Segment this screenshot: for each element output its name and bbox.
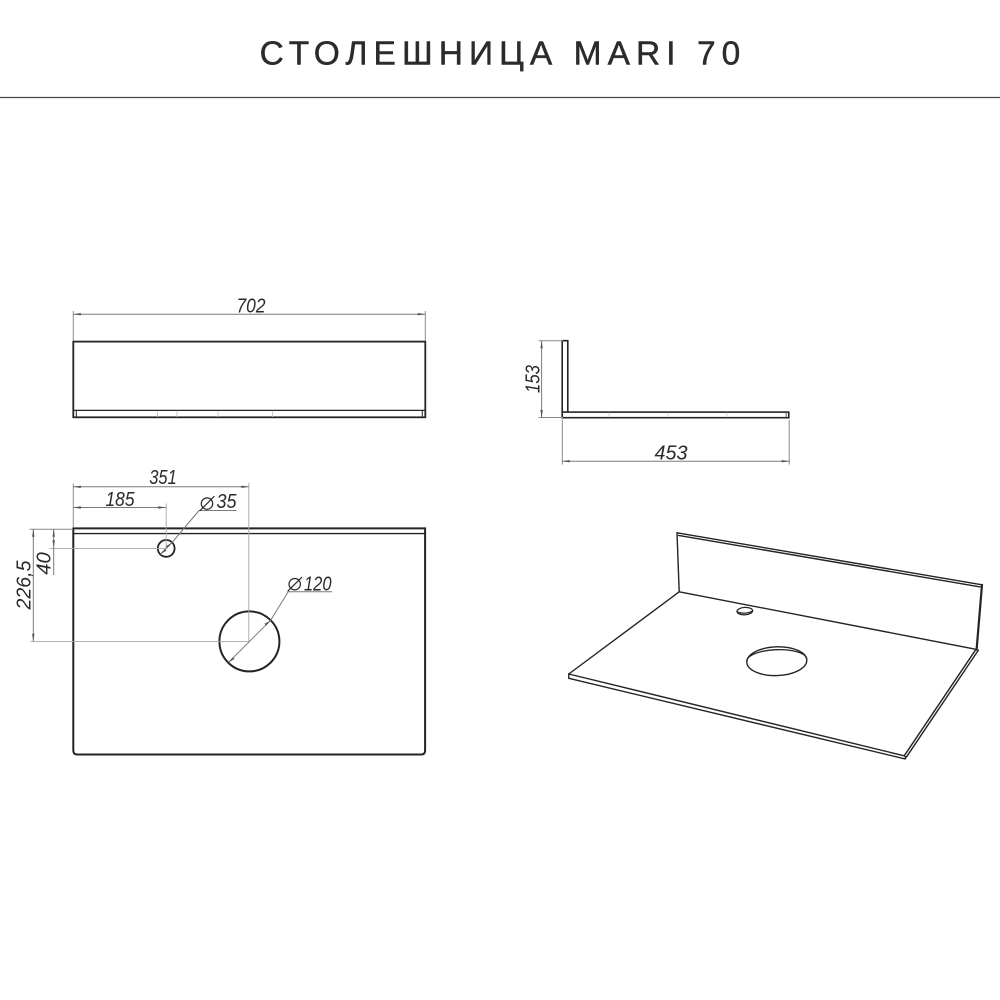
- svg-text:153: 153: [523, 365, 545, 393]
- svg-text:СТОЛЕШНИЦА MARI 70: СТОЛЕШНИЦА MARI 70: [260, 35, 747, 72]
- svg-text:35: 35: [217, 491, 238, 513]
- svg-text:185: 185: [106, 489, 136, 511]
- svg-text:702: 702: [237, 296, 266, 318]
- svg-text:226,5: 226,5: [14, 560, 36, 611]
- svg-text:453: 453: [655, 443, 688, 465]
- svg-text:351: 351: [149, 467, 177, 489]
- svg-text:120: 120: [304, 573, 332, 595]
- svg-text:40: 40: [34, 552, 56, 575]
